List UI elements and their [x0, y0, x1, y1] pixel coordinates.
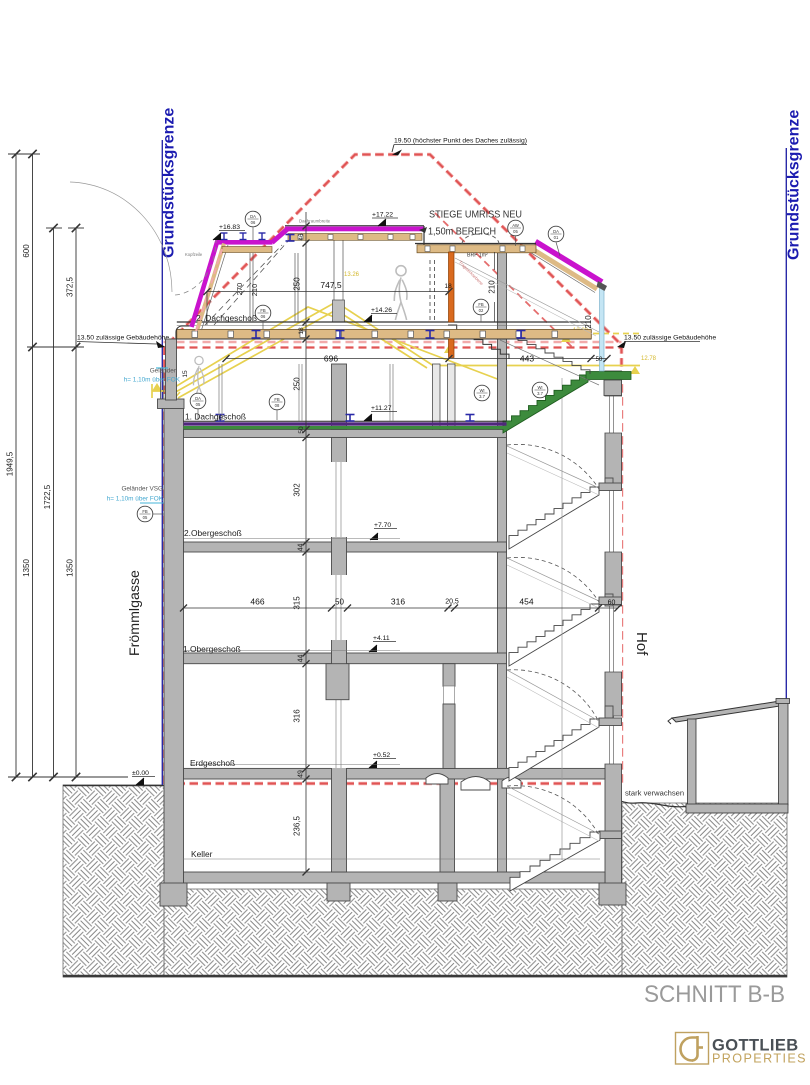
- svg-text:3.7: 3.7: [537, 391, 543, 396]
- svg-text:STIEGE UMRISS NEU: STIEGE UMRISS NEU: [429, 210, 522, 221]
- svg-text:08: 08: [275, 403, 280, 408]
- svg-text:210: 210: [488, 280, 497, 294]
- svg-text:WI: WI: [479, 388, 484, 393]
- svg-text:01: 01: [554, 235, 559, 240]
- svg-text:50: 50: [335, 598, 344, 607]
- svg-text:44: 44: [298, 544, 305, 552]
- svg-text:210: 210: [584, 315, 593, 329]
- svg-text:13.50 zulässige Gebäudehöhe: 13.50 zulässige Gebäudehöhe: [624, 335, 716, 342]
- svg-text:3.7: 3.7: [479, 394, 485, 399]
- svg-text:+14.26: +14.26: [371, 307, 392, 314]
- svg-text:2.Obergeschoß: 2.Obergeschoß: [184, 528, 242, 538]
- svg-text:210: 210: [250, 284, 259, 297]
- svg-text:1.Obergeschoß: 1.Obergeschoß: [183, 644, 241, 654]
- svg-text:50: 50: [596, 357, 603, 363]
- svg-text:19.50 (höchster Punkt des Dach: 19.50 (höchster Punkt des Daches zulässi…: [394, 138, 527, 145]
- svg-text:FB: FB: [478, 302, 484, 307]
- svg-text:FB: FB: [260, 308, 266, 313]
- svg-text:+4.11: +4.11: [373, 635, 390, 642]
- svg-text:466: 466: [250, 597, 264, 607]
- svg-text:h= 1,10m über FOK: h= 1,10m über FOK: [107, 496, 164, 503]
- svg-text:1350: 1350: [66, 559, 75, 577]
- svg-text:1350: 1350: [22, 559, 31, 577]
- svg-text:+11.27: +11.27: [371, 405, 392, 412]
- svg-text:13.50 zulässige Gebäudehöhe: 13.50 zulässige Gebäudehöhe: [77, 335, 169, 342]
- svg-text:Grundstücksgrenze: Grundstücksgrenze: [786, 110, 803, 260]
- svg-text:Geländer: Geländer: [150, 368, 177, 375]
- svg-text:+7.70: +7.70: [374, 522, 391, 529]
- svg-text:02: 02: [479, 308, 484, 313]
- svg-text:SCHNITT B-B: SCHNITT B-B: [644, 981, 785, 1008]
- svg-text:1949,5: 1949,5: [6, 451, 15, 476]
- svg-text:302: 302: [293, 483, 302, 497]
- svg-text:316: 316: [293, 709, 302, 723]
- svg-text:WI: WI: [537, 385, 542, 390]
- svg-text:50: 50: [298, 426, 305, 434]
- svg-text:±0.00: ±0.00: [132, 770, 149, 777]
- svg-text:h= 1,10m über FOK: h= 1,10m über FOK: [124, 377, 181, 384]
- svg-text:05: 05: [513, 229, 518, 234]
- svg-text:Tragwerksebene: Tragwerksebene: [458, 260, 485, 287]
- svg-text:FB: FB: [142, 509, 148, 514]
- svg-text:747,5: 747,5: [320, 280, 342, 290]
- svg-text:316: 316: [391, 597, 405, 607]
- svg-text:372,5: 372,5: [66, 276, 75, 297]
- svg-text:12.78: 12.78: [641, 356, 657, 362]
- svg-text:315: 315: [293, 596, 302, 610]
- svg-text:Frömmlgasse: Frömmlgasse: [127, 570, 143, 656]
- svg-text:BRF 1m²: BRF 1m²: [467, 253, 488, 259]
- svg-text:236,5: 236,5: [293, 815, 302, 836]
- svg-text:Hof: Hof: [633, 632, 650, 656]
- svg-text:49: 49: [298, 770, 305, 778]
- svg-text:1. Dachgeschoß: 1. Dachgeschoß: [185, 412, 246, 422]
- svg-text:696: 696: [324, 354, 338, 364]
- svg-text:+16.83: +16.83: [219, 224, 240, 231]
- svg-text:2. Dachgeschoß: 2. Dachgeschoß: [196, 313, 257, 323]
- svg-text:18: 18: [298, 327, 305, 335]
- svg-text:+0.52: +0.52: [373, 752, 390, 759]
- svg-text:AW: AW: [512, 223, 519, 228]
- svg-text:+17.22: +17.22: [372, 212, 393, 219]
- svg-text:Grundstücksgrenze: Grundstücksgrenze: [161, 108, 178, 258]
- svg-text:20,5: 20,5: [445, 599, 459, 606]
- svg-text:454: 454: [519, 597, 533, 607]
- svg-text:FB: FB: [274, 397, 280, 402]
- svg-text:Erdgeschoß: Erdgeschoß: [190, 758, 235, 768]
- svg-text:1722,5: 1722,5: [43, 484, 52, 509]
- svg-text:PROPERTIES: PROPERTIES: [712, 1052, 807, 1066]
- svg-text:18: 18: [445, 283, 453, 290]
- svg-text:DA: DA: [250, 214, 256, 219]
- svg-text:60: 60: [608, 600, 616, 607]
- svg-text:06: 06: [261, 314, 266, 319]
- svg-text:Geländer VSG: Geländer VSG: [121, 486, 163, 493]
- svg-text:15: 15: [182, 370, 189, 378]
- svg-text:Kopfzeile: Kopfzeile: [185, 252, 203, 257]
- svg-text:270: 270: [235, 283, 244, 296]
- svg-text:44: 44: [298, 655, 305, 663]
- svg-text:46: 46: [298, 233, 305, 241]
- svg-text:443: 443: [520, 354, 534, 364]
- svg-text:06: 06: [251, 220, 256, 225]
- svg-text:250: 250: [293, 377, 302, 391]
- svg-text:250: 250: [293, 277, 302, 291]
- svg-text:13.26: 13.26: [344, 272, 360, 278]
- svg-text:Dachraumbreite: Dachraumbreite: [299, 219, 331, 224]
- svg-text:600: 600: [22, 244, 31, 258]
- svg-text:DA: DA: [195, 396, 201, 401]
- svg-text:1,50m BEREICH: 1,50m BEREICH: [428, 227, 496, 238]
- svg-text:Keller: Keller: [191, 849, 213, 859]
- svg-text:DA: DA: [553, 229, 559, 234]
- svg-text:05: 05: [196, 402, 201, 407]
- svg-text:05: 05: [143, 515, 148, 520]
- svg-text:stark verwachsen: stark verwachsen: [625, 789, 684, 798]
